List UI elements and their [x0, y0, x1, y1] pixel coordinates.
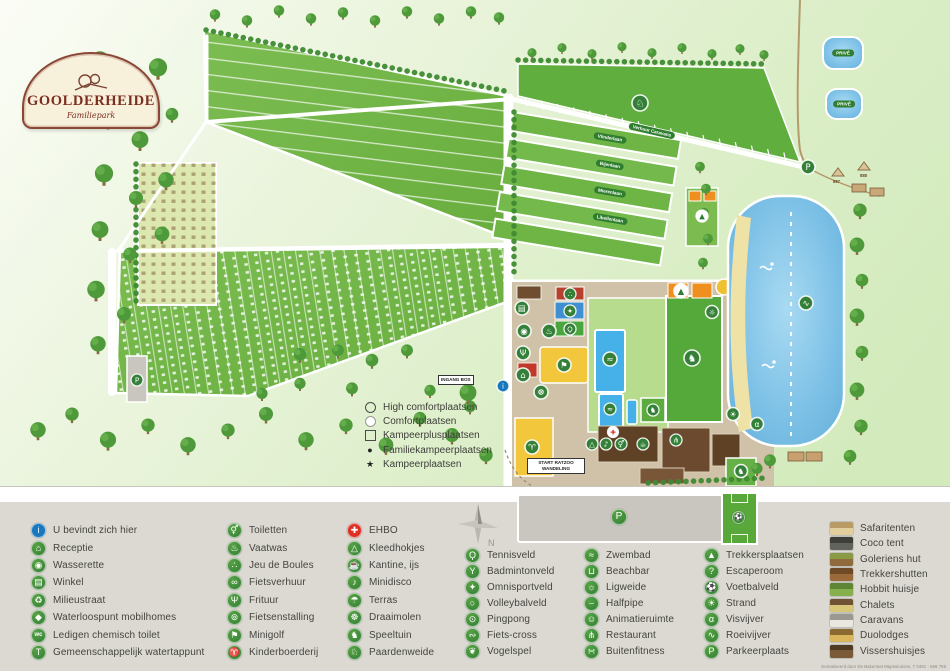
legend-column: ≈Zwembad⊔Beachbar☼Ligweide⌣Halfpipe☺Anim…: [584, 547, 674, 659]
svg-text:⚥: ⚥: [618, 440, 625, 449]
waterloospunt-icon: ◆: [31, 610, 46, 625]
svg-text:▲: ▲: [699, 212, 705, 221]
legend-item-label: Paardenweide: [369, 647, 434, 658]
legend-item: ⊙Pingpong: [465, 611, 554, 627]
trekkershut-thumb: [830, 568, 853, 581]
trekkers-cabin: [692, 283, 712, 298]
kleedhokjes-icon: △: [347, 541, 362, 556]
svg-text:☕: ☕: [640, 440, 646, 449]
svg-text:◉: ◉: [520, 326, 527, 336]
svg-text:✚: ✚: [610, 428, 616, 436]
legend-item-label: Buitenfitness: [606, 646, 665, 657]
speeltuin-map-icon-2: ♞: [684, 350, 700, 366]
thumb-roof: [830, 629, 853, 635]
svg-text:☼: ☼: [709, 308, 716, 317]
caravan-thumb: [830, 614, 853, 627]
receptie-icon: ⌂: [31, 541, 46, 556]
zwembad-map-icon-2: ≈: [604, 403, 616, 415]
legend-item-label: Roeivijver: [726, 630, 771, 641]
legend-item: TGemeenschappelijk watertappunt: [31, 644, 204, 661]
parkeer-map-icon: P: [131, 374, 143, 386]
legend-item-label: Wasserette: [53, 560, 104, 571]
vissershuisje-thumb: [830, 645, 853, 658]
jeu-de-boules-map-icon: ∴: [564, 288, 576, 300]
svg-text:☸: ☸: [537, 387, 545, 397]
legend-item: αVisvijver: [704, 611, 804, 627]
pingpong-icon: ⊙: [465, 612, 480, 627]
winkel-map-icon: ▤: [515, 301, 529, 315]
draaimolen-icon: ☸: [347, 610, 362, 625]
svg-text:P: P: [805, 162, 810, 172]
thumb-roof: [830, 645, 853, 651]
svg-text:♈: ♈: [528, 442, 536, 452]
halfpipe-icon: ⌣: [584, 596, 599, 611]
kinderboerderij-icon: ♈: [227, 645, 242, 660]
legend-item-label: Volleybalveld: [487, 598, 547, 609]
svg-text:♞: ♞: [688, 353, 697, 364]
kinderboerderij-map-icon: ♈: [525, 440, 539, 454]
legend-item-label: U bevindt zich hier: [53, 525, 137, 536]
legend-item: Goleriens hut: [830, 552, 928, 567]
legend-item-label: Trekkersplaatsen: [726, 550, 804, 561]
svg-text:♘: ♘: [636, 98, 645, 109]
legend-item: ⊚Fietsenstalling: [227, 609, 318, 626]
legend-item: ○Volleybalveld: [465, 595, 554, 611]
kantine-map-icon: ☕: [637, 438, 649, 450]
paardenweide-icon: ♘: [347, 645, 362, 660]
legend-item-label: Kinderboerderij: [249, 647, 318, 658]
svg-text:Ϙ: Ϙ: [567, 325, 573, 334]
svg-text:▤: ▤: [518, 303, 526, 313]
legend-column: iU bevindt zich hier⌂Receptie◉Wasserette…: [31, 522, 204, 661]
strand-map-icon: ☀: [727, 408, 740, 421]
minigolf-map-icon: ⚑: [557, 358, 571, 372]
legend-item: ♨Vaatwas: [227, 539, 318, 556]
legend-item-label: Fietsenstalling: [249, 612, 314, 623]
roeivijver-map-icon: ∿: [799, 296, 813, 310]
thumb-roof: [830, 537, 853, 543]
legend-item: ⚑Minigolf: [227, 626, 318, 643]
legend-item-label: Halfpipe: [606, 598, 644, 609]
legend-item-label: Terras: [369, 595, 397, 606]
legend-item: Chalets: [830, 597, 928, 612]
legend-item: wcLedigen chemisch toilet: [31, 626, 204, 643]
legend-item-label: Waterloospunt mobilhomes: [53, 612, 176, 623]
hut: [852, 184, 866, 192]
parkeer-map-icon-2: P: [801, 160, 815, 174]
legend-item-label: Vogelspel: [487, 646, 531, 657]
legend-item: Vissershuisjes: [830, 643, 928, 658]
legend-item-label: Winkel: [53, 577, 84, 588]
kantine-icon: ☕: [347, 558, 362, 573]
legend-item-label: Ligweide: [606, 582, 646, 593]
legend-item-label: Voetbalveld: [726, 582, 779, 593]
fietsenstalling-icon: ⊚: [227, 610, 242, 625]
visvijver-icon: α: [704, 612, 719, 627]
legend-item-label: Kleedhokjes: [369, 543, 425, 554]
legend-item: Caravans: [830, 613, 928, 628]
legend-item-label: Escaperoom: [726, 566, 783, 577]
legend-item: ☼Ligweide: [584, 579, 674, 595]
thumb-roof: [830, 599, 853, 605]
legend-item: ◉Wasserette: [31, 557, 204, 574]
legend-item-label: Fiets-cross: [487, 630, 537, 641]
strand-icon: ☀: [704, 596, 719, 611]
legend-item: YBadmintonveld: [465, 563, 554, 579]
svg-text:i: i: [502, 382, 504, 391]
legend-item: Duolodges: [830, 628, 928, 643]
legend-column: ⚥Toiletten♨Vaatwas∴Jeu de Boules∞Fietsve…: [227, 522, 318, 661]
park-map-page: ♘▤◉♨Ψ⌂☸∴✦Ϙ⚑≈≈♞♞♞▲▲△♪⚥☕⋔✚♈iPP☀α∿☼ P ⚽ N i…: [0, 0, 950, 671]
beachbar-icon: ⊔: [584, 564, 599, 579]
legend-item-label: Chalets: [860, 600, 895, 611]
legend-item: ⚥Toiletten: [227, 522, 318, 539]
restaurant-icon: ⋔: [584, 628, 599, 643]
legend-column: SafaritentenCoco tentGoleriens hutTrekke…: [830, 521, 928, 659]
svg-text:△: △: [589, 440, 595, 449]
omnisportveld-icon: ✦: [465, 580, 480, 595]
legend-item: ✚EHBO: [347, 522, 434, 539]
legend-item-label: Gemeenschappelijk watertappunt: [53, 647, 204, 658]
legend-item-label: Restaurant: [606, 630, 656, 641]
legend-item: ☀Strand: [704, 595, 804, 611]
legend-item: ☕Kantine, ijs: [347, 557, 434, 574]
legend-item: ⌂Receptie: [31, 539, 204, 556]
legend-item-label: Safaritenten: [860, 523, 915, 534]
hut: [870, 188, 884, 196]
fiets-cross-icon: ∾: [465, 628, 480, 643]
info-icon: i: [31, 523, 46, 538]
legend-item-label: Animatieruimte: [606, 614, 674, 625]
legend-item: Coco tent: [830, 536, 928, 551]
svg-text:♨: ♨: [545, 326, 553, 336]
svg-text:☀: ☀: [730, 410, 737, 419]
legend-item-label: Zwembad: [606, 550, 651, 561]
vaatwas-map-icon: ♨: [542, 324, 556, 338]
legend-item-label: Ledigen chemisch toilet: [53, 630, 160, 641]
svg-text:⌂: ⌂: [520, 370, 525, 380]
credit-text: Gerealiseerd door De Bakermat Mapsolutio…: [821, 664, 946, 669]
kleedhokjes-map-icon: △: [586, 438, 598, 450]
legend-item: ∾Fiets-cross: [465, 627, 554, 643]
fietsverhuur-icon: ∞: [227, 575, 242, 590]
paardenweide-map-icon: ♘: [632, 95, 648, 111]
badmintonveld-icon: Y: [465, 564, 480, 579]
legend-item-label: Parkeerplaats: [726, 646, 789, 657]
private-pond-1: [823, 37, 863, 69]
legend-item: Trekkershutten: [830, 567, 928, 582]
lodge: [806, 452, 822, 461]
legend-item: ♪Minidisco: [347, 574, 434, 591]
hobbit-huisje-thumb: [830, 583, 853, 596]
duolodge-thumb: [830, 629, 853, 642]
frituur-icon: Ψ: [227, 593, 242, 608]
goal-box: [731, 534, 748, 543]
legend-item-label: Omnisportveld: [487, 582, 553, 593]
legend-item-label: Fietsverhuur: [249, 577, 306, 588]
wasserette-icon: ◉: [31, 558, 46, 573]
legend-item-label: Badmintonveld: [487, 566, 554, 577]
legend-item-label: Draaimolen: [369, 612, 421, 623]
legend-item-label: Pingpong: [487, 614, 530, 625]
thumb-roof: [830, 583, 853, 589]
legend-item-label: Hobbit huisje: [860, 584, 919, 595]
terras-icon: ☂: [347, 593, 362, 608]
legend-item-label: Jeu de Boules: [249, 560, 314, 571]
svg-text:⚑: ⚑: [560, 360, 568, 370]
paddling-pool: [627, 400, 637, 424]
legend-item: ☂Terras: [347, 592, 434, 609]
legend-item: ∺Buitenfitness: [584, 643, 674, 659]
voetbalveld-icon: ⚽: [704, 580, 719, 595]
legend-item-label: Coco tent: [860, 538, 904, 549]
thumb-roof: [830, 553, 853, 559]
legend-item: ☸Draaimolen: [347, 609, 434, 626]
parking-lot: P: [517, 494, 723, 543]
thumb-roof: [830, 614, 853, 620]
legend-item: PParkeerplaats: [704, 643, 804, 659]
legend-item: ∴Jeu de Boules: [227, 557, 318, 574]
toiletten-icon: ⚥: [227, 523, 242, 538]
ehbo-icon: ✚: [347, 523, 362, 538]
sanitary-building: [517, 286, 541, 299]
legend-item-label: Trekkershutten: [860, 569, 928, 580]
animatieruimte-icon: ☺: [584, 612, 599, 627]
volleybalveld-icon: ○: [465, 596, 480, 611]
minidisco-map-icon: ♪: [600, 438, 612, 450]
legend-item-label: Goleriens hut: [860, 554, 921, 565]
legend-item: ♞Speeltuin: [347, 626, 434, 643]
tennis-map-icon: Ϙ: [564, 323, 576, 335]
legend-item-label: Milieustraat: [53, 595, 105, 606]
goleriens-hut-thumb: [830, 553, 853, 566]
lake-area: [728, 196, 844, 446]
legend-item: ❦Vogelspel: [465, 643, 554, 659]
jeu-de-boules-icon: ∴: [227, 558, 242, 573]
svg-text:♞: ♞: [738, 467, 745, 476]
svg-text:≈: ≈: [606, 354, 613, 364]
private-pond-2: [826, 89, 862, 119]
ehbo-map-icon: ✚: [608, 427, 619, 438]
legend-item-label: Caravans: [860, 615, 904, 626]
visvijver-map-icon: α: [751, 418, 764, 431]
legend-item: ∿Roeivijver: [704, 627, 804, 643]
legend-item: Hobbit huisje: [830, 582, 928, 597]
trekkersplaatsen-icon: ▲: [704, 548, 719, 563]
ligweide-map-icon: ☼: [706, 306, 719, 319]
legend-item: ♘Paardenweide: [347, 644, 434, 661]
escaperoom-icon: ?: [704, 564, 719, 579]
svg-text:⋔: ⋔: [673, 436, 679, 445]
watertappunt-icon: T: [31, 645, 46, 660]
legend-item-label: Beachbar: [606, 566, 650, 577]
legend-item: ▤Winkel: [31, 574, 204, 591]
frituur-map-icon: Ψ: [516, 346, 530, 360]
chemisch-toilet-icon: wc: [31, 628, 46, 643]
svg-text:♪: ♪: [604, 440, 609, 449]
legend-item-label: EHBO: [369, 525, 398, 536]
winkel-icon: ▤: [31, 575, 46, 590]
info-map-icon: i: [497, 380, 509, 392]
legend-item-label: Duolodges: [860, 630, 909, 641]
legend-item-label: Kantine, ijs: [369, 560, 419, 571]
legend-item-label: Strand: [726, 598, 756, 609]
omnisport-map-icon: ✦: [564, 305, 576, 317]
goal-box: [731, 494, 748, 503]
thumb-roof: [830, 568, 853, 574]
legend-item: ♻Milieustraat: [31, 592, 204, 609]
legend-item: ⌣Halfpipe: [584, 595, 674, 611]
minidisco-icon: ♪: [347, 575, 362, 590]
football-field: ⚽: [721, 492, 758, 545]
vaatwas-icon: ♨: [227, 541, 242, 556]
legend-item-label: Speeltuin: [369, 630, 412, 641]
safaritent-thumb: [830, 522, 853, 535]
svg-text:Ψ: Ψ: [520, 348, 527, 358]
buitenfitness-icon: ∺: [584, 644, 599, 659]
trekkersplaatsen-map-icon-2: ▲: [696, 210, 708, 222]
legend-item-label: Receptie: [53, 543, 93, 554]
draaimolen-map-icon: ☸: [534, 385, 548, 399]
parkeer-lot-icon: P: [611, 509, 627, 525]
legend-item: ⋔Restaurant: [584, 627, 674, 643]
legend-item-label: Toiletten: [249, 525, 287, 536]
svg-text:▲: ▲: [678, 286, 685, 296]
tennisveld-icon: Ϙ: [465, 548, 480, 563]
zwembad-map-icon: ≈: [603, 352, 617, 366]
compass-north-icon: N: [452, 502, 506, 550]
svg-text:∿: ∿: [802, 298, 809, 308]
thumb-roof: [830, 522, 853, 528]
chalet-thumb: [830, 599, 853, 612]
legend-item-label: Frituur: [249, 595, 279, 606]
svg-text:∴: ∴: [568, 290, 573, 299]
legend-item: ☺Animatieruimte: [584, 611, 674, 627]
roeivijver-icon: ∿: [704, 628, 719, 643]
legend-item: ◆Waterloospunt mobilhomes: [31, 609, 204, 626]
legend-item: ?Escaperoom: [704, 563, 804, 579]
legend-item: ✦Omnisportveld: [465, 579, 554, 595]
legend-item: △Kleedhokjes: [347, 539, 434, 556]
svg-text:α: α: [754, 420, 759, 429]
minigolf-icon: ⚑: [227, 628, 242, 643]
legend-item: ϘTennisveld: [465, 547, 554, 563]
voetbalveld-map-icon: ⚽: [732, 511, 745, 524]
svg-text:P: P: [135, 376, 140, 385]
speeltuin-map-icon-3: ♞: [735, 465, 748, 478]
speeltuin-icon: ♞: [347, 628, 362, 643]
legend-item: iU bevindt zich hier: [31, 522, 204, 539]
legend-item: ≈Zwembad: [584, 547, 674, 563]
coco-tent-thumb: [830, 537, 853, 550]
legend-item-label: Vissershuisjes: [860, 646, 925, 657]
legend-panel: P ⚽ N iU bevindt zich hier⌂Receptie◉Wass…: [0, 502, 950, 671]
parkeerplaats-icon: P: [704, 644, 719, 659]
legend-item: ⊔Beachbar: [584, 563, 674, 579]
zwembad-icon: ≈: [584, 548, 599, 563]
speeltuin-map-icon: ♞: [647, 404, 659, 416]
restaurant-building: [662, 428, 710, 472]
legend-item: ∞Fietsverhuur: [227, 574, 318, 591]
restaurant-map-icon: ⋔: [670, 434, 682, 446]
svg-text:≈: ≈: [607, 405, 613, 414]
legend-item-label: Visvijver: [726, 614, 764, 625]
legend-item: ▲Trekkersplaatsen: [704, 547, 804, 563]
legend-item-label: Minidisco: [369, 577, 412, 588]
legend-column: ✚EHBO△Kleedhokjes☕Kantine, ijs♪Minidisco…: [347, 522, 434, 661]
receptie-map-icon: ⌂: [516, 368, 530, 382]
legend-item-label: Tennisveld: [487, 550, 535, 561]
legend-item: Safaritenten: [830, 521, 928, 536]
legend-item-label: Vaatwas: [249, 543, 287, 554]
wasserette-map-icon: ◉: [517, 324, 531, 338]
legend-item-label: Minigolf: [249, 630, 284, 641]
milieustraat-icon: ♻: [31, 593, 46, 608]
legend-item: ΨFrituur: [227, 592, 318, 609]
legend-column: ϘTennisveldYBadmintonveld✦Omnisportveld○…: [465, 547, 554, 659]
toiletten-map-icon: ⚥: [615, 438, 627, 450]
vogelspel-icon: ❦: [465, 644, 480, 659]
legend-item: ♈Kinderboerderij: [227, 644, 318, 661]
ligweide-icon: ☼: [584, 580, 599, 595]
trekkersplaatsen-map-icon: ▲: [674, 284, 688, 298]
legend-item: ⚽Voetbalveld: [704, 579, 804, 595]
lodge: [788, 452, 804, 461]
svg-text:♞: ♞: [650, 406, 656, 415]
legend-column: ▲Trekkersplaatsen?Escaperoom⚽Voetbalveld…: [704, 547, 804, 659]
svg-text:✦: ✦: [567, 307, 573, 316]
